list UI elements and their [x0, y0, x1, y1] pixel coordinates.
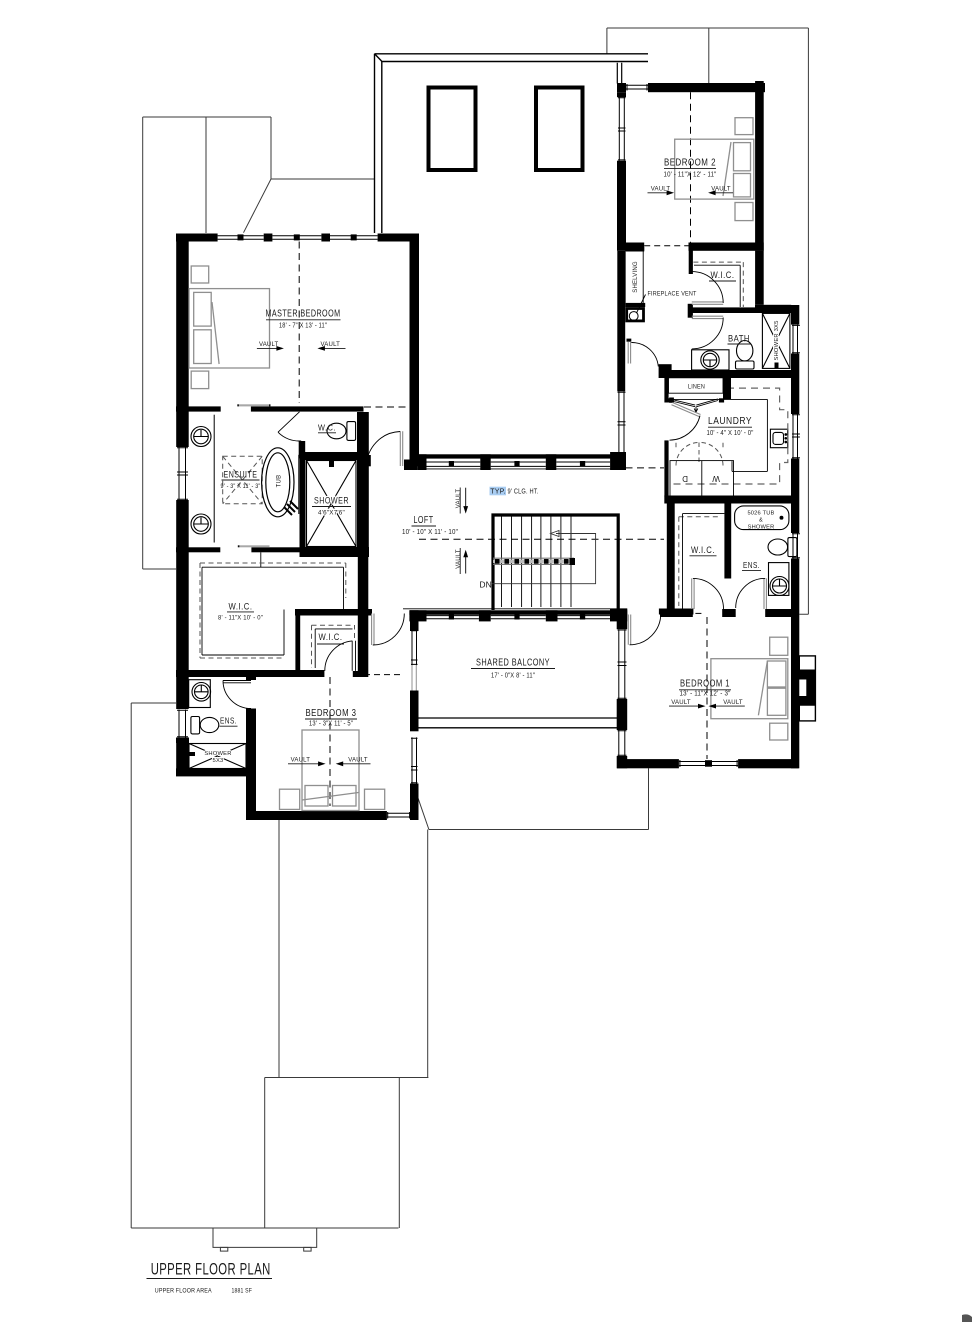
svg-text:TYP.: TYP. — [490, 489, 505, 496]
svg-text:VAULT: VAULT — [455, 549, 462, 569]
svg-text:4'6"X7'6": 4'6"X7'6" — [318, 510, 345, 517]
svg-text:5X3: 5X3 — [213, 758, 224, 764]
svg-text:W.I.C.: W.I.C. — [229, 601, 253, 611]
svg-text:W.C.: W.C. — [318, 422, 336, 432]
svg-text:VAULT: VAULT — [259, 341, 279, 348]
svg-text:9' CLG. HT.: 9' CLG. HT. — [508, 489, 539, 496]
svg-text:TUB: TUB — [277, 475, 283, 488]
svg-text:W.I.C.: W.I.C. — [319, 632, 343, 642]
svg-text:BEDROOM 2: BEDROOM 2 — [664, 157, 716, 168]
svg-text:5026 TUB: 5026 TUB — [747, 510, 774, 516]
svg-text:13' - 11"X 12' - 3": 13' - 11"X 12' - 3" — [680, 690, 731, 697]
svg-text:10' - 10" X 11' - 10": 10' - 10" X 11' - 10" — [402, 529, 458, 536]
svg-text:10' - 11"X 12' - 11": 10' - 11"X 12' - 11" — [664, 172, 717, 179]
svg-text:LAUNDRY: LAUNDRY — [708, 416, 752, 427]
svg-text:&: & — [759, 517, 763, 523]
svg-text:ENS.: ENS. — [220, 716, 237, 726]
svg-text:UPPER FLOOR AREA: UPPER FLOOR AREA — [155, 1288, 212, 1295]
svg-text:W.I.C.: W.I.C. — [711, 270, 735, 280]
svg-text:SHARED BALCONY: SHARED BALCONY — [476, 658, 550, 669]
svg-text:VAULT: VAULT — [291, 757, 311, 764]
svg-text:13' - 3"X 11' - 5": 13' - 3"X 11' - 5" — [309, 720, 353, 727]
svg-text:FIREPLACE VENT: FIREPLACE VENT — [648, 290, 697, 297]
svg-text:W.I.C.: W.I.C. — [691, 545, 715, 555]
svg-text:VAULT: VAULT — [455, 489, 462, 509]
svg-text:SHOWER 3X5: SHOWER 3X5 — [774, 320, 780, 360]
svg-text:10' - 4" X 10' - 0": 10' - 4" X 10' - 0" — [707, 430, 754, 437]
svg-text:18' - 7" X 13' - 11": 18' - 7" X 13' - 11" — [279, 323, 327, 330]
svg-text:SHOWER: SHOWER — [314, 496, 349, 506]
svg-text:9' - 3" X 11' - 3": 9' - 3" X 11' - 3" — [221, 483, 261, 490]
svg-text:D: D — [682, 474, 688, 483]
svg-text:VAULT: VAULT — [671, 699, 691, 706]
svg-text:MASTER BEDROOM: MASTER BEDROOM — [266, 309, 341, 320]
svg-text:BATH: BATH — [728, 333, 750, 343]
svg-text:UPPER FLOOR PLAN: UPPER FLOOR PLAN — [151, 1260, 271, 1279]
svg-text:SHELVING: SHELVING — [633, 261, 639, 293]
svg-text:8' - 11"X 10' - 0": 8' - 11"X 10' - 0" — [218, 615, 263, 622]
svg-text:W: W — [712, 474, 720, 483]
svg-text:ENSUITE: ENSUITE — [224, 469, 258, 479]
svg-text:VAULT: VAULT — [723, 699, 743, 706]
svg-text:1881 SF: 1881 SF — [232, 1288, 253, 1295]
svg-text:VAULT: VAULT — [348, 757, 368, 764]
svg-text:SHOWER: SHOWER — [204, 751, 231, 757]
svg-text:17' - 0"X 8' - 11": 17' - 0"X 8' - 11" — [491, 673, 535, 680]
svg-text:LOFT: LOFT — [414, 515, 434, 526]
svg-text:BEDROOM 1: BEDROOM 1 — [680, 679, 730, 690]
svg-text:DN: DN — [479, 580, 492, 590]
svg-text:SHOWER: SHOWER — [748, 524, 775, 530]
svg-text:ENS.: ENS. — [743, 560, 760, 570]
svg-text:BEDROOM 3: BEDROOM 3 — [306, 708, 357, 719]
svg-text:LINEN: LINEN — [688, 383, 705, 390]
